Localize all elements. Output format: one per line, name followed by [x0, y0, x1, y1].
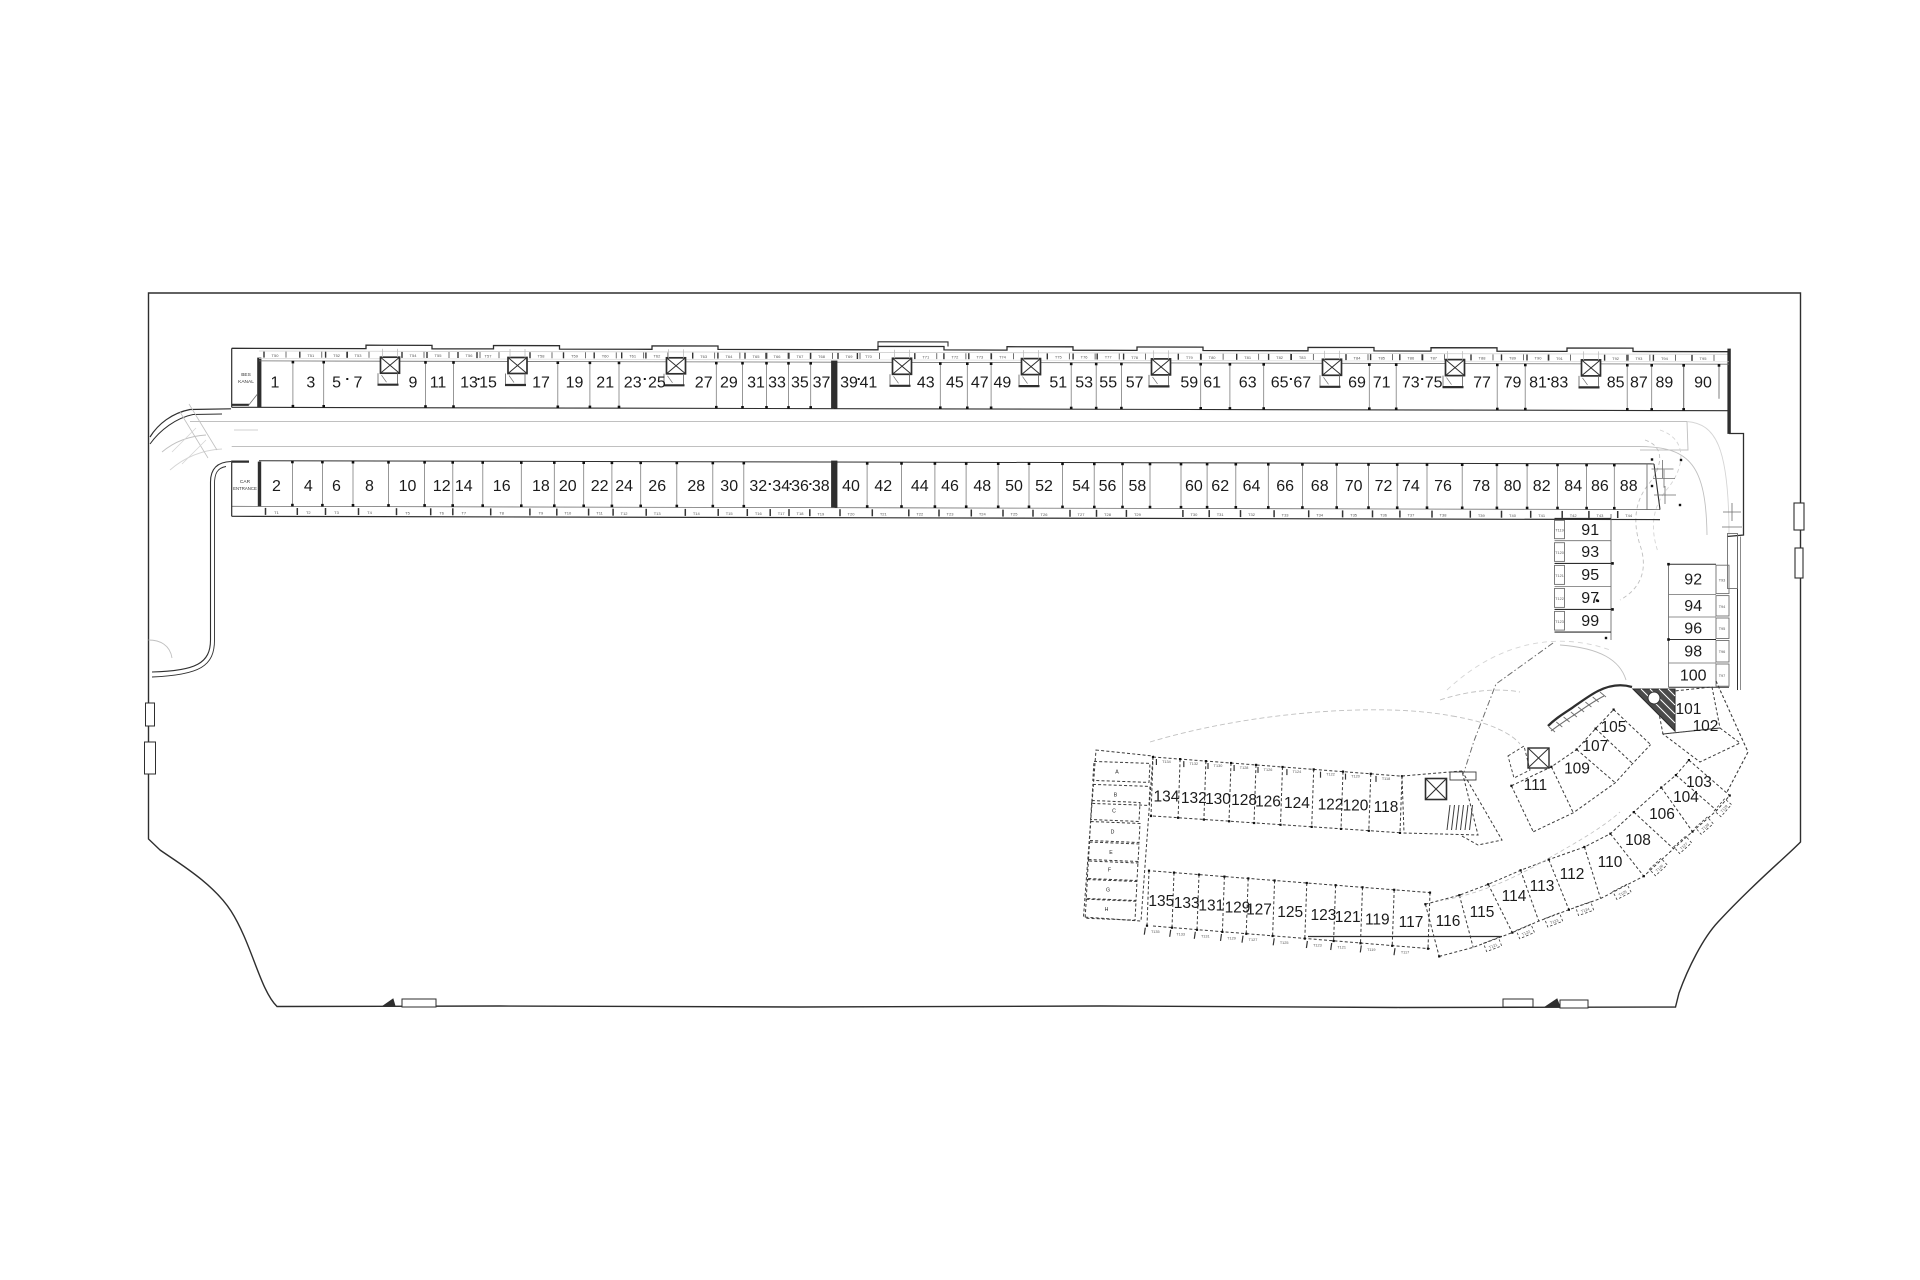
svg-text:T50: T50: [272, 353, 280, 358]
svg-text:67: 67: [1293, 375, 1311, 392]
svg-text:39: 39: [840, 375, 858, 392]
svg-text:125: 125: [1277, 904, 1303, 921]
svg-text:134: 134: [1153, 789, 1179, 806]
svg-text:135: 135: [1148, 893, 1174, 910]
svg-text:T40: T40: [1509, 513, 1517, 518]
svg-text:80: 80: [1504, 478, 1522, 495]
svg-text:131: 131: [1198, 897, 1224, 914]
svg-text:T14: T14: [693, 511, 701, 516]
svg-text:T33: T33: [1282, 512, 1290, 517]
svg-text:6: 6: [332, 478, 341, 495]
svg-text:T52: T52: [333, 353, 341, 358]
svg-text:123: 123: [1310, 907, 1336, 924]
svg-text:34: 34: [772, 478, 790, 495]
svg-text:85: 85: [1607, 375, 1625, 392]
svg-text:T94: T94: [1719, 605, 1726, 609]
svg-text:T62: T62: [653, 354, 661, 359]
svg-text:T61: T61: [629, 354, 637, 359]
svg-text:T39: T39: [1478, 513, 1486, 518]
svg-text:T76: T76: [1081, 355, 1089, 360]
svg-text:T70: T70: [865, 354, 873, 359]
svg-text:2: 2: [272, 478, 281, 495]
svg-text:114: 114: [1502, 888, 1527, 905]
svg-text:10: 10: [399, 478, 417, 495]
svg-text:T24: T24: [979, 512, 987, 517]
svg-text:T126: T126: [1264, 768, 1273, 772]
svg-text:T58: T58: [538, 353, 546, 358]
svg-text:T72: T72: [951, 354, 959, 359]
svg-text:T131: T131: [1201, 934, 1210, 938]
svg-text:65: 65: [1271, 375, 1289, 392]
svg-text:T93: T93: [1719, 578, 1726, 582]
svg-text:T9: T9: [539, 511, 544, 516]
svg-text:44: 44: [911, 478, 929, 495]
svg-text:T59: T59: [571, 354, 579, 359]
svg-text:T134: T134: [1162, 760, 1171, 764]
svg-text:68: 68: [1311, 478, 1329, 495]
svg-text:79: 79: [1504, 375, 1522, 392]
svg-text:97: 97: [1581, 590, 1599, 607]
svg-text:18: 18: [532, 478, 550, 495]
svg-text:23: 23: [624, 375, 642, 392]
svg-text:T4: T4: [367, 510, 372, 515]
svg-text:72: 72: [1375, 478, 1393, 495]
svg-text:115: 115: [1470, 904, 1495, 921]
svg-text:T30: T30: [1190, 512, 1198, 517]
svg-text:T22: T22: [916, 512, 924, 517]
svg-text:T2: T2: [306, 510, 311, 515]
svg-text:T89: T89: [1509, 356, 1517, 361]
svg-text:7: 7: [354, 375, 363, 392]
svg-text:124: 124: [1284, 795, 1310, 812]
svg-text:48: 48: [973, 478, 991, 495]
svg-text:D: D: [1111, 830, 1115, 836]
svg-text:99: 99: [1581, 613, 1599, 630]
svg-text:30: 30: [720, 478, 738, 495]
svg-text:126: 126: [1255, 793, 1281, 810]
svg-text:16: 16: [493, 478, 511, 495]
svg-text:T38: T38: [1440, 513, 1448, 518]
svg-text:66: 66: [1276, 478, 1294, 495]
svg-text:15: 15: [479, 375, 497, 392]
svg-text:3: 3: [306, 375, 315, 392]
svg-text:111: 111: [1524, 777, 1548, 794]
svg-text:78: 78: [1472, 478, 1490, 495]
svg-text:101: 101: [1675, 701, 1701, 718]
svg-text:22: 22: [591, 478, 609, 495]
svg-text:T129: T129: [1227, 936, 1236, 940]
svg-text:T15: T15: [726, 511, 734, 516]
svg-text:91: 91: [1581, 522, 1599, 539]
svg-text:113: 113: [1530, 878, 1555, 895]
svg-text:T64: T64: [725, 354, 733, 359]
svg-text:T121: T121: [1555, 574, 1564, 578]
svg-text:BES: BES: [241, 372, 251, 378]
svg-text:58: 58: [1129, 478, 1147, 495]
svg-text:61: 61: [1203, 375, 1221, 392]
svg-text:T25: T25: [1011, 512, 1019, 517]
svg-text:76: 76: [1434, 478, 1452, 495]
svg-text:33: 33: [768, 375, 786, 392]
svg-text:83: 83: [1551, 375, 1569, 392]
svg-text:T97: T97: [1719, 674, 1726, 678]
svg-text:T86: T86: [1407, 355, 1415, 360]
svg-text:41: 41: [860, 375, 878, 392]
svg-text:86: 86: [1591, 478, 1609, 495]
svg-text:T91: T91: [1556, 356, 1564, 361]
svg-text:T85: T85: [1378, 355, 1386, 360]
svg-text:28: 28: [687, 478, 705, 495]
svg-text:96: 96: [1684, 621, 1702, 638]
svg-text:17: 17: [532, 375, 550, 392]
svg-text:120: 120: [1343, 798, 1369, 815]
svg-text:T44: T44: [1625, 513, 1633, 518]
svg-text:T92: T92: [1612, 356, 1620, 361]
svg-text:90: 90: [1694, 375, 1712, 392]
svg-text:105: 105: [1601, 719, 1627, 736]
svg-text:B: B: [1114, 792, 1118, 798]
svg-text:T23: T23: [947, 512, 955, 517]
svg-text:112: 112: [1560, 866, 1585, 883]
svg-text:31: 31: [747, 375, 765, 392]
svg-text:9: 9: [409, 375, 418, 392]
svg-text:T3: T3: [334, 510, 339, 515]
svg-text:130: 130: [1205, 791, 1231, 808]
svg-text:G: G: [1106, 888, 1110, 894]
svg-text:60: 60: [1185, 478, 1203, 495]
svg-text:122: 122: [1318, 796, 1344, 813]
svg-text:CAR: CAR: [240, 479, 251, 485]
svg-text:T16: T16: [755, 511, 763, 516]
svg-text:128: 128: [1231, 792, 1257, 809]
svg-text:T32: T32: [1248, 512, 1256, 517]
svg-text:T123: T123: [1555, 620, 1564, 624]
svg-text:T73: T73: [976, 354, 984, 359]
svg-text:T130: T130: [1214, 764, 1223, 768]
svg-text:77: 77: [1473, 375, 1491, 392]
svg-text:T60: T60: [602, 354, 610, 359]
svg-text:T54: T54: [410, 353, 418, 358]
svg-text:98: 98: [1684, 644, 1702, 661]
svg-text:1: 1: [271, 375, 280, 392]
svg-text:T43: T43: [1596, 513, 1604, 518]
svg-text:ENTRANCE: ENTRANCE: [233, 486, 257, 491]
svg-text:T35: T35: [1350, 513, 1358, 518]
svg-text:T31: T31: [1217, 512, 1225, 517]
svg-text:E: E: [1109, 850, 1113, 856]
svg-text:26: 26: [648, 478, 666, 495]
svg-text:T66: T66: [774, 354, 782, 359]
svg-text:106: 106: [1649, 806, 1675, 823]
svg-text:T78: T78: [1131, 355, 1139, 360]
svg-text:T36: T36: [1380, 513, 1388, 518]
svg-text:119: 119: [1365, 911, 1390, 928]
svg-text:T95: T95: [1719, 627, 1726, 631]
svg-text:24: 24: [615, 478, 633, 495]
svg-text:55: 55: [1099, 375, 1117, 392]
svg-text:108: 108: [1625, 832, 1651, 849]
svg-text:T119: T119: [1367, 948, 1375, 952]
svg-text:T127: T127: [1249, 938, 1258, 942]
svg-text:100: 100: [1680, 667, 1707, 684]
svg-text:46: 46: [941, 478, 959, 495]
svg-text:12: 12: [433, 478, 451, 495]
svg-text:T71: T71: [922, 354, 930, 359]
svg-text:35: 35: [791, 375, 809, 392]
svg-text:T11: T11: [596, 511, 603, 516]
svg-text:84: 84: [1564, 478, 1582, 495]
svg-text:104: 104: [1673, 789, 1699, 806]
svg-text:T20: T20: [848, 511, 856, 516]
svg-text:T42: T42: [1570, 513, 1578, 518]
svg-text:T79: T79: [1186, 355, 1194, 360]
svg-text:T57: T57: [485, 353, 493, 358]
svg-text:T90: T90: [1535, 356, 1543, 361]
svg-text:T34: T34: [1316, 512, 1324, 517]
svg-text:94: 94: [1684, 598, 1702, 615]
svg-text:T120: T120: [1555, 551, 1564, 555]
svg-text:T74: T74: [999, 355, 1007, 360]
svg-text:32: 32: [749, 478, 767, 495]
svg-text:62: 62: [1211, 478, 1229, 495]
svg-text:T121: T121: [1337, 946, 1346, 950]
svg-text:T27: T27: [1078, 512, 1086, 517]
svg-text:69: 69: [1348, 375, 1366, 392]
svg-text:T12: T12: [621, 511, 629, 516]
svg-text:T133: T133: [1176, 932, 1185, 936]
svg-text:56: 56: [1099, 478, 1117, 495]
svg-text:37: 37: [813, 375, 831, 392]
svg-text:43: 43: [917, 375, 935, 392]
svg-text:27: 27: [695, 375, 713, 392]
svg-text:4: 4: [304, 478, 313, 495]
svg-text:T19: T19: [817, 511, 825, 516]
svg-text:73: 73: [1402, 375, 1420, 392]
svg-text:81: 81: [1529, 375, 1547, 392]
svg-text:T81: T81: [1244, 355, 1252, 360]
svg-text:88: 88: [1620, 478, 1638, 495]
svg-text:T63: T63: [700, 354, 708, 359]
svg-text:T68: T68: [818, 354, 826, 359]
svg-text:T117: T117: [1401, 951, 1409, 955]
svg-text:64: 64: [1243, 478, 1261, 495]
svg-text:8: 8: [365, 478, 374, 495]
svg-text:F: F: [1108, 868, 1111, 874]
svg-text:117: 117: [1399, 914, 1424, 931]
svg-text:38: 38: [812, 478, 830, 495]
svg-text:36: 36: [791, 478, 809, 495]
svg-text:20: 20: [559, 478, 577, 495]
svg-text:T37: T37: [1407, 513, 1415, 518]
svg-text:40: 40: [842, 478, 860, 495]
svg-text:70: 70: [1345, 478, 1363, 495]
svg-text:T122: T122: [1326, 773, 1335, 777]
svg-text:T118: T118: [1382, 777, 1390, 781]
svg-text:52: 52: [1035, 478, 1053, 495]
svg-text:102: 102: [1693, 718, 1719, 735]
svg-text:T51: T51: [307, 353, 315, 358]
svg-text:T124: T124: [1293, 770, 1302, 774]
svg-text:T6: T6: [439, 510, 444, 515]
svg-text:75: 75: [1425, 375, 1443, 392]
svg-text:T26: T26: [1041, 512, 1049, 517]
svg-text:T55: T55: [435, 353, 443, 358]
svg-text:116: 116: [1436, 913, 1461, 930]
svg-text:T128: T128: [1240, 766, 1249, 770]
svg-text:T29: T29: [1134, 512, 1142, 517]
svg-text:T21: T21: [880, 511, 888, 516]
svg-text:A: A: [1115, 769, 1119, 775]
svg-text:87: 87: [1630, 375, 1648, 392]
svg-text:T67: T67: [796, 354, 804, 359]
svg-text:T119: T119: [1555, 529, 1563, 533]
svg-text:107: 107: [1582, 738, 1608, 755]
svg-text:63: 63: [1239, 375, 1257, 392]
svg-text:T83: T83: [1299, 355, 1307, 360]
svg-text:T75: T75: [1055, 355, 1063, 360]
svg-text:25: 25: [648, 375, 666, 392]
svg-text:T17: T17: [778, 511, 786, 516]
svg-text:127: 127: [1246, 901, 1272, 918]
svg-text:95: 95: [1581, 567, 1599, 584]
svg-text:T88: T88: [1479, 356, 1487, 361]
svg-text:57: 57: [1126, 375, 1144, 392]
svg-text:T13: T13: [654, 511, 662, 516]
svg-text:14: 14: [455, 478, 473, 495]
svg-text:T87: T87: [1430, 356, 1438, 361]
svg-text:42: 42: [874, 478, 892, 495]
svg-text:13: 13: [460, 375, 478, 392]
svg-text:T5: T5: [405, 510, 410, 515]
svg-text:45: 45: [946, 375, 964, 392]
svg-text:53: 53: [1075, 375, 1093, 392]
svg-text:92: 92: [1684, 572, 1702, 589]
svg-text:T53: T53: [355, 353, 363, 358]
svg-text:T1: T1: [274, 510, 279, 515]
svg-text:T122: T122: [1555, 597, 1564, 601]
svg-text:51: 51: [1049, 375, 1067, 392]
svg-text:T123: T123: [1313, 944, 1322, 948]
svg-text:21: 21: [596, 375, 614, 392]
svg-text:132: 132: [1181, 790, 1207, 807]
svg-text:T84: T84: [1354, 355, 1362, 360]
svg-text:T93: T93: [1635, 356, 1643, 361]
svg-text:T18: T18: [797, 511, 805, 516]
svg-text:93: 93: [1581, 544, 1599, 561]
svg-text:29: 29: [720, 375, 738, 392]
svg-text:T125: T125: [1280, 941, 1289, 945]
svg-text:T41: T41: [1538, 513, 1546, 518]
svg-text:89: 89: [1656, 375, 1674, 392]
svg-text:54: 54: [1072, 478, 1090, 495]
svg-text:T65: T65: [753, 354, 761, 359]
svg-text:133: 133: [1174, 895, 1200, 912]
svg-text:T56: T56: [466, 353, 474, 358]
svg-text:T96: T96: [1719, 650, 1726, 654]
svg-text:T10: T10: [564, 511, 572, 516]
svg-text:11: 11: [430, 375, 447, 392]
svg-text:71: 71: [1373, 375, 1391, 392]
svg-text:74: 74: [1402, 478, 1420, 495]
svg-text:19: 19: [566, 375, 584, 392]
svg-text:47: 47: [971, 375, 989, 392]
svg-text:T120: T120: [1351, 775, 1360, 779]
svg-text:103: 103: [1686, 774, 1712, 791]
svg-text:T8: T8: [499, 511, 504, 516]
svg-text:109: 109: [1564, 761, 1590, 778]
svg-text:T135: T135: [1151, 930, 1160, 934]
svg-text:121: 121: [1335, 909, 1361, 926]
svg-text:110: 110: [1598, 854, 1623, 871]
svg-text:T80: T80: [1209, 355, 1217, 360]
svg-text:118: 118: [1374, 799, 1399, 816]
svg-text:H: H: [1105, 907, 1109, 913]
svg-text:T82: T82: [1276, 355, 1284, 360]
svg-text:KANAL: KANAL: [238, 379, 254, 385]
svg-text:T7: T7: [461, 510, 466, 515]
svg-text:T94: T94: [1661, 356, 1669, 361]
svg-text:T28: T28: [1104, 512, 1112, 517]
svg-text:59: 59: [1180, 375, 1198, 392]
svg-text:T69: T69: [846, 354, 854, 359]
svg-text:50: 50: [1005, 478, 1023, 495]
svg-text:49: 49: [994, 375, 1012, 392]
svg-text:82: 82: [1533, 478, 1551, 495]
svg-text:T95: T95: [1700, 356, 1708, 361]
svg-text:T132: T132: [1189, 762, 1198, 766]
svg-text:5: 5: [332, 375, 341, 392]
svg-text:T77: T77: [1105, 355, 1113, 360]
svg-text:C: C: [1112, 809, 1116, 815]
